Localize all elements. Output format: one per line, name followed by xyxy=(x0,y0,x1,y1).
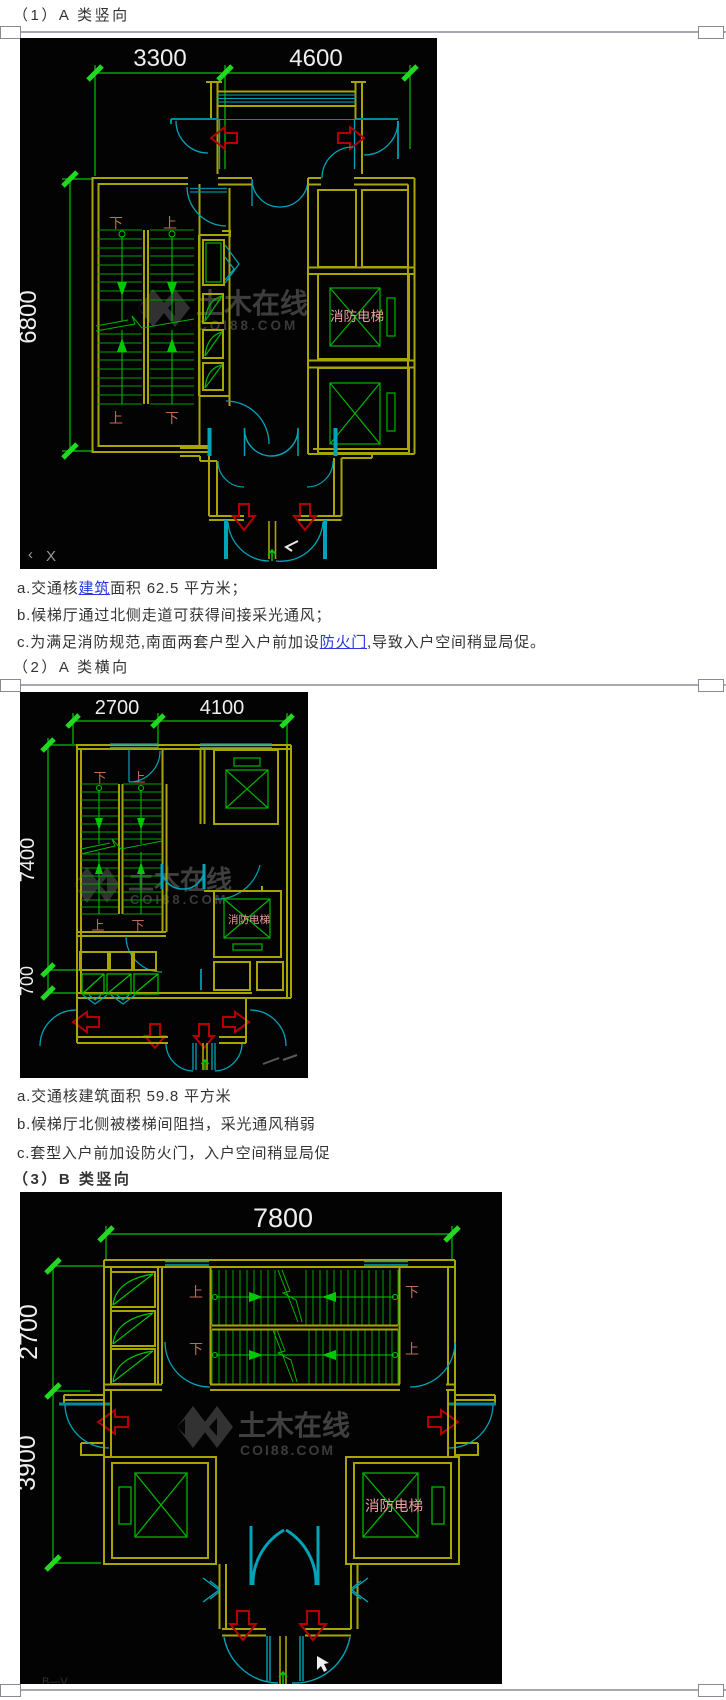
svg-text:下: 下 xyxy=(165,410,179,426)
svg-text:上: 上 xyxy=(132,770,145,785)
svg-text:3300: 3300 xyxy=(133,45,186,72)
svg-text:700: 700 xyxy=(20,966,37,996)
svg-text:消防电梯: 消防电梯 xyxy=(228,913,270,926)
svg-text:6800: 6800 xyxy=(20,290,42,343)
svg-text:下: 下 xyxy=(131,918,144,933)
svg-text:COI88.COM: COI88.COM xyxy=(240,1442,335,1458)
svg-text:7400: 7400 xyxy=(20,838,39,883)
svg-text:上: 上 xyxy=(163,215,177,231)
svg-text:上: 上 xyxy=(405,1341,419,1357)
svg-text:消防电梯: 消防电梯 xyxy=(330,309,384,324)
svg-text:下: 下 xyxy=(109,215,123,231)
svg-text:下: 下 xyxy=(405,1284,419,1300)
svg-text:2700: 2700 xyxy=(20,1304,43,1360)
svg-text:X: X xyxy=(46,548,56,565)
svg-text:消防电梯: 消防电梯 xyxy=(365,1498,423,1515)
svg-text:上: 上 xyxy=(91,918,104,933)
svg-text:上: 上 xyxy=(189,1284,203,1300)
svg-text:4600: 4600 xyxy=(289,45,342,72)
svg-text:下: 下 xyxy=(189,1341,203,1357)
svg-text:上: 上 xyxy=(109,410,123,426)
svg-text:土木在线: 土木在线 xyxy=(196,288,308,319)
svg-text:B—V: B—V xyxy=(42,1676,68,1684)
svg-text:2700: 2700 xyxy=(95,697,140,719)
svg-text:下: 下 xyxy=(93,770,106,785)
svg-text:‹: ‹ xyxy=(28,546,33,563)
svg-text:4100: 4100 xyxy=(200,697,245,719)
svg-text:7800: 7800 xyxy=(253,1203,313,1233)
svg-text:3900: 3900 xyxy=(20,1435,41,1491)
svg-text:土木在线: 土木在线 xyxy=(238,1410,350,1441)
